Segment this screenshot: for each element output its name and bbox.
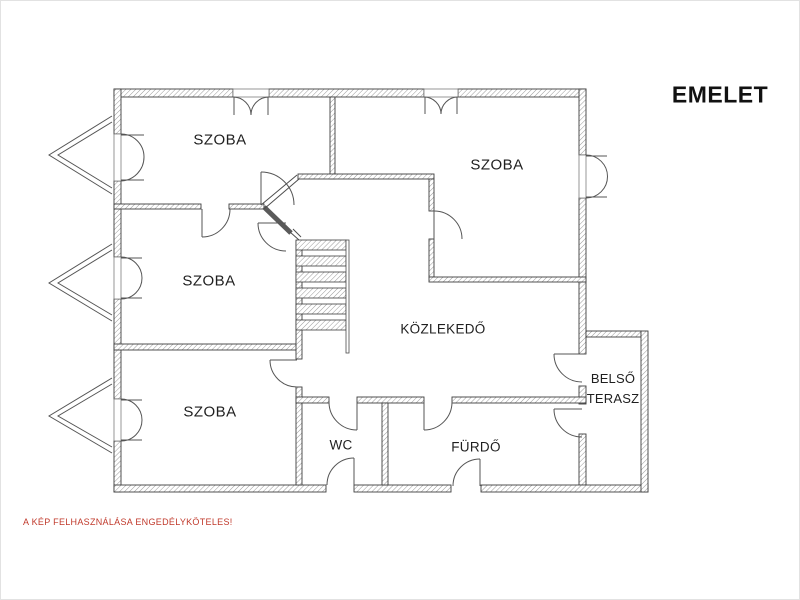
floor-plan-page: EMELET SZOBA SZOBA SZOBA SZOBA KÖZLEKEDŐ… [0, 0, 800, 600]
stair-tread [296, 304, 346, 314]
stair-tread [296, 288, 346, 298]
copyright-notice: A KÉP FELHASZNÁLÁSA ENGEDÉLYKÖTELES! [23, 517, 233, 527]
door-bottom-left-room [270, 360, 297, 387]
interior-walls [114, 97, 586, 485]
room-label-belso-terasz-line1: BELSŐ [587, 369, 639, 389]
door-wc-top [329, 402, 357, 430]
window-left-wall-2 [121, 257, 142, 299]
room-label-szoba-top-left: SZOBA [193, 132, 246, 149]
topright-room-bottom-wall [429, 277, 586, 282]
room-label-kozlekedo: KÖZLEKEDŐ [400, 322, 485, 337]
doors [202, 172, 582, 486]
stair-tread [296, 272, 346, 282]
wc-furdo-divider-wall [382, 403, 388, 485]
window-left-wall-1 [121, 134, 144, 181]
wall-between-left-rooms [114, 344, 301, 350]
door-furdo-bottom [453, 459, 480, 486]
door-furdo-top [424, 402, 452, 430]
terrace-top-wall [586, 331, 641, 337]
room-label-belso-terasz: BELSŐ TERASZ [587, 369, 639, 409]
window-casements [121, 97, 608, 441]
stair-rail [346, 240, 349, 353]
floor-title: EMELET [672, 82, 768, 109]
stair-tread [296, 320, 346, 330]
door-wc-bottom [327, 458, 354, 485]
stairs [296, 240, 349, 353]
terrace-right-wall [641, 331, 648, 492]
window-top-left-room [233, 97, 269, 115]
window-left-wall-3 [121, 399, 142, 441]
bay-window-1 [49, 116, 112, 194]
stair-tread [296, 256, 346, 266]
door-top-left-room [261, 172, 294, 205]
diagonal-walls [261, 175, 301, 240]
bay-windows [49, 116, 112, 453]
door-between-left-rooms [202, 209, 230, 237]
door-hall-terrace [554, 354, 582, 382]
window-openings [114, 89, 586, 441]
room-label-belso-terasz-line2: TERASZ [587, 389, 639, 409]
window-right-wall [586, 155, 608, 198]
hall-top-wall [298, 174, 434, 179]
room-label-furdo: FÜRDŐ [451, 440, 501, 455]
room-label-wc: WC [329, 438, 352, 453]
bay-window-2 [49, 244, 112, 321]
door-top-right-room [434, 211, 462, 239]
door-furdo-terrace [554, 409, 582, 437]
room-label-szoba-bottom-left: SZOBA [183, 404, 236, 421]
room-label-szoba-middle-left: SZOBA [182, 273, 235, 290]
window-top-right-room [424, 97, 458, 114]
stair-tread [296, 240, 346, 250]
wall-between-top-rooms [330, 97, 335, 179]
exterior-walls [114, 89, 648, 492]
bay-window-3 [49, 378, 112, 453]
room-label-szoba-top-right: SZOBA [470, 157, 523, 174]
